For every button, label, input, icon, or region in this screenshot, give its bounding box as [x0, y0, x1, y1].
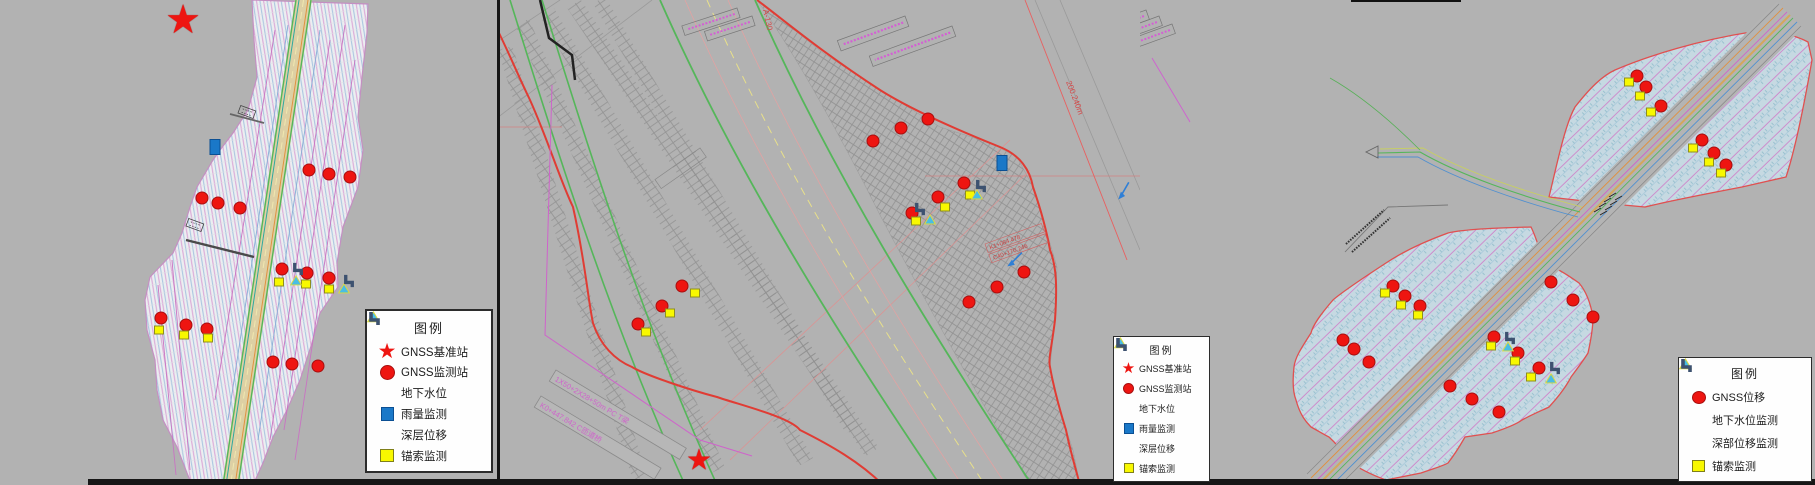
legend-item: 雨量监测 [1118, 418, 1205, 438]
anchor-cable-marker [1396, 301, 1406, 310]
anchor-cable-marker [179, 331, 189, 340]
deep-displacement-elbow-icon [1114, 337, 1129, 352]
legend-item: 深层位移 [1118, 438, 1205, 458]
gnss-monitoring-marker [922, 113, 935, 126]
deep-displacement-elbow-icon [367, 311, 382, 326]
left-slope-hatched-area [145, 0, 368, 485]
anchor-cable-marker [1526, 373, 1536, 382]
anchor-cable-marker [324, 285, 334, 294]
legend-item: GNSS位移 [1685, 386, 1805, 409]
legend-item-label: GNSS基准站 [401, 344, 468, 360]
gnss-monitoring-marker [323, 272, 336, 285]
anchor-cable-square-icon [1124, 463, 1134, 473]
anchor-cable-marker [940, 203, 950, 212]
legend-item: ★GNSS基准站 [373, 341, 485, 362]
legend-item-label: 深层位移 [1139, 442, 1175, 455]
gnss-monitoring-marker [1363, 356, 1376, 369]
gnss-monitoring-marker [196, 192, 209, 205]
anchor-cable-marker [1646, 108, 1656, 117]
gnss-monitoring-marker [676, 280, 689, 293]
gnss-base-star-icon: ★ [378, 341, 397, 362]
anchor-cable-marker [1510, 357, 1520, 366]
rain-gauge-square-icon [381, 407, 394, 421]
anchor-cable-marker [1635, 92, 1645, 101]
legend-item-label: 地下水位监测 [1712, 412, 1778, 428]
rain-gauge-marker [997, 155, 1008, 171]
legend-item-label: GNSS监测站 [401, 364, 468, 380]
legend-item: 锚索监测 [373, 445, 485, 466]
gnss-monitoring-marker [991, 281, 1004, 294]
anchor-cable-marker [1716, 169, 1726, 178]
gnss-monitoring-marker [1655, 100, 1668, 113]
branch-ramp [1330, 78, 1582, 217]
legend-middle: 图例 ★GNSS基准站GNSS监测站地下水位雨量监测深层位移锚索监测 [1113, 336, 1210, 482]
legend-left: 图例 ★GNSS基准站GNSS监测站地下水位雨量监测深层位移锚索监测 [365, 309, 493, 473]
legend-item-label: 锚索监测 [1712, 458, 1756, 474]
legend-item-label: 锚索监测 [1139, 462, 1175, 475]
legend-item-label: 深部位移监测 [1712, 435, 1778, 451]
legend-item-label: 雨量监测 [401, 406, 447, 422]
legend-item: 锚索监测 [1118, 458, 1205, 478]
legend-item-label: GNSS位移 [1712, 389, 1765, 405]
site-plan-middle: 200.240m A-130 1X50+2X28+50m PC T梁 K0+44… [497, 0, 1140, 485]
bottom-border-bar [88, 479, 1815, 485]
gnss-monitoring-marker [1545, 276, 1558, 289]
gnss-monitoring-marker [1466, 393, 1479, 406]
legend-item-label: 地下水位 [1139, 402, 1175, 415]
gnss-monitoring-marker [155, 312, 168, 325]
gnss-monitoring-marker [234, 202, 247, 215]
chainage-text: 200.240m [1064, 79, 1085, 116]
rain-gauge-square-icon [1124, 423, 1134, 434]
legend-item: 地下水位 [373, 383, 485, 404]
legend-item-label: 锚索监测 [401, 448, 447, 464]
gnss-base-station-marker: ★ [165, 0, 201, 40]
gnss-monitoring-marker [212, 197, 225, 210]
anchor-cable-marker [911, 217, 921, 226]
gnss-monitoring-marker [1587, 311, 1600, 324]
gnss-monitoring-marker [958, 177, 971, 190]
anchor-cable-marker [1380, 289, 1390, 298]
central-slope-area [757, 0, 1080, 485]
anchor-cable-square-icon [380, 449, 394, 462]
gnss-monitoring-marker [312, 360, 325, 373]
anchor-cable-marker [301, 280, 311, 289]
gnss-monitoring-marker [1567, 294, 1580, 307]
gnss-circle-icon [380, 365, 395, 380]
anchor-cable-square-icon [1692, 460, 1705, 472]
gnss-monitoring-marker [286, 358, 299, 371]
legend-title: 图例 [373, 318, 485, 337]
anchor-cable-marker [154, 326, 164, 335]
legend-item-label: 深层位移 [401, 427, 447, 443]
anchor-cable-marker [1688, 144, 1698, 153]
legend-title: 图例 [1118, 342, 1205, 357]
gnss-monitoring-marker [867, 135, 880, 148]
legend-item: GNSS监测站 [1118, 379, 1205, 399]
legend-item: 地下水位 [1118, 399, 1205, 419]
anchor-cable-marker [1624, 78, 1634, 87]
legend-item-label: GNSS监测站 [1139, 382, 1192, 395]
legend-item: GNSS监测站 [373, 362, 485, 383]
gnss-circle-icon [1692, 391, 1706, 404]
gnss-base-star-icon: ★ [1122, 361, 1135, 376]
anchor-cable-marker [665, 309, 675, 318]
gnss-monitoring-marker [963, 296, 976, 309]
legend-item-label: 地下水位 [401, 385, 447, 401]
gnss-monitoring-marker [1444, 380, 1457, 393]
legend-item: 地下水位监测 [1685, 409, 1805, 432]
gnss-monitoring-marker [267, 356, 280, 369]
legend-item: 深层位移 [373, 424, 485, 445]
gnss-monitoring-marker [895, 122, 908, 135]
anchor-cable-marker [203, 334, 213, 343]
gnss-monitoring-marker [276, 263, 289, 276]
anchor-cable-marker [1486, 342, 1496, 351]
rain-gauge-marker [210, 139, 221, 155]
legend-title: 图例 [1685, 365, 1805, 382]
gnss-monitoring-marker [1493, 406, 1506, 419]
site-plan-canvas: 200.240m A-130 1X50+2X28+50m PC T梁 K0+44… [0, 0, 1815, 485]
panel-divider [497, 0, 500, 485]
legend-item: 雨量监测 [373, 404, 485, 425]
gnss-circle-icon [1123, 383, 1134, 394]
legend-item-label: GNSS基准站 [1139, 362, 1192, 375]
gnss-base-station-marker: ★ [686, 446, 712, 475]
legend-item: 深部位移监测 [1685, 432, 1805, 455]
gnss-monitoring-marker [303, 164, 316, 177]
gnss-monitoring-marker [344, 171, 357, 184]
legend-right: 图例 GNSS位移地下水位监测深部位移监测锚索监测 [1678, 357, 1812, 482]
anchor-cable-marker [1704, 158, 1714, 167]
deep-displacement-elbow-icon [1679, 358, 1694, 373]
right-cad-label-boxes [1140, 1, 1461, 122]
anchor-cable-marker [1413, 311, 1423, 320]
legend-item: ★GNSS基准站 [1118, 359, 1205, 379]
legend-item: 锚索监测 [1685, 454, 1805, 477]
anchor-cable-marker [690, 289, 700, 298]
anchor-cable-marker [274, 278, 284, 287]
anchor-cable-marker [641, 328, 651, 337]
gnss-monitoring-marker [323, 168, 336, 181]
legend-item-label: 雨量监测 [1139, 422, 1175, 435]
gnss-monitoring-marker [1348, 343, 1361, 356]
